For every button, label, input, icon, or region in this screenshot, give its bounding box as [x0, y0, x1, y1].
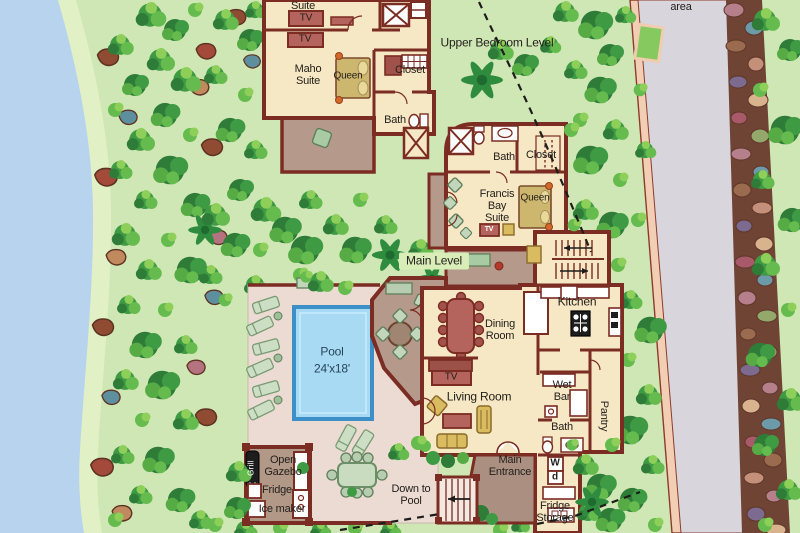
coffee-table: [443, 414, 471, 428]
dryer-label: d: [552, 473, 558, 484]
hamper: [527, 246, 541, 263]
dining-room-label: Dining Room: [476, 319, 524, 343]
pantry-label: Pantry: [597, 401, 609, 432]
villa-floor-plan: Suite TV TV Maho Suite Queen Closet Bath…: [0, 0, 800, 533]
living-room-label: Living Room: [424, 391, 534, 404]
deck-planter: [495, 262, 503, 270]
grill-label: Grill: [248, 460, 257, 476]
francis-bay-suite-label: Francis Bay Suite: [475, 189, 519, 225]
fb-queen-label: Queen: [520, 194, 549, 205]
lanai-table: [388, 322, 412, 346]
fb-bath-fixtures: [474, 126, 518, 144]
shoreline: [0, 0, 111, 533]
upper-level-label: Upper Bedroom Level: [387, 37, 607, 50]
fridge-storage-label: Fridge Storage: [531, 501, 579, 525]
tv-shelf: [429, 360, 472, 371]
main-entrance-label: Main Entrance: [479, 455, 541, 479]
maho-closet-label: Closet: [375, 65, 445, 77]
pool-label: Pool: [320, 346, 343, 359]
tv-label-1: TV: [300, 14, 312, 25]
parking-area-label: area: [656, 2, 706, 14]
sofa: [437, 434, 467, 448]
pool-stairs: [435, 474, 480, 524]
roof-skylights: [404, 128, 428, 158]
stove: [571, 311, 590, 336]
patio-table: [338, 463, 376, 487]
main-bath-label: Bath: [537, 422, 587, 434]
pool-size-label: 24'x18': [314, 363, 350, 376]
wet-bar-label: Wet Bar: [545, 380, 579, 404]
tv-label-2: TV: [299, 35, 311, 46]
down-to-pool-label: Down to Pool: [388, 484, 434, 508]
road-planter: [635, 24, 663, 61]
francis-deck: [429, 174, 446, 248]
ice-maker-label: Ice maker: [242, 504, 322, 516]
fb-queen-bed: [519, 183, 553, 231]
kitchen-label: Kitchen: [537, 296, 617, 309]
fb-tv-label: TV: [485, 226, 494, 234]
washer-label: W: [550, 459, 559, 470]
fb-ottoman: [503, 224, 514, 235]
armchair: [477, 406, 491, 433]
open-gazebo-label: Open Gazebo: [257, 455, 309, 479]
living-tv-label: TV: [445, 373, 457, 384]
main-level-label: Main Level: [399, 253, 469, 270]
francis-bay-building: [429, 124, 566, 248]
suite-label: Suite: [273, 1, 333, 13]
maho-bath-label: Bath: [384, 115, 406, 127]
dining-table: [447, 299, 474, 353]
fb-closet-label: Closet: [506, 150, 576, 162]
maho-suite-label: Maho Suite: [282, 64, 334, 88]
fridge-label: Fridge: [247, 485, 307, 497]
maho-queen-label: Queen: [333, 72, 362, 83]
